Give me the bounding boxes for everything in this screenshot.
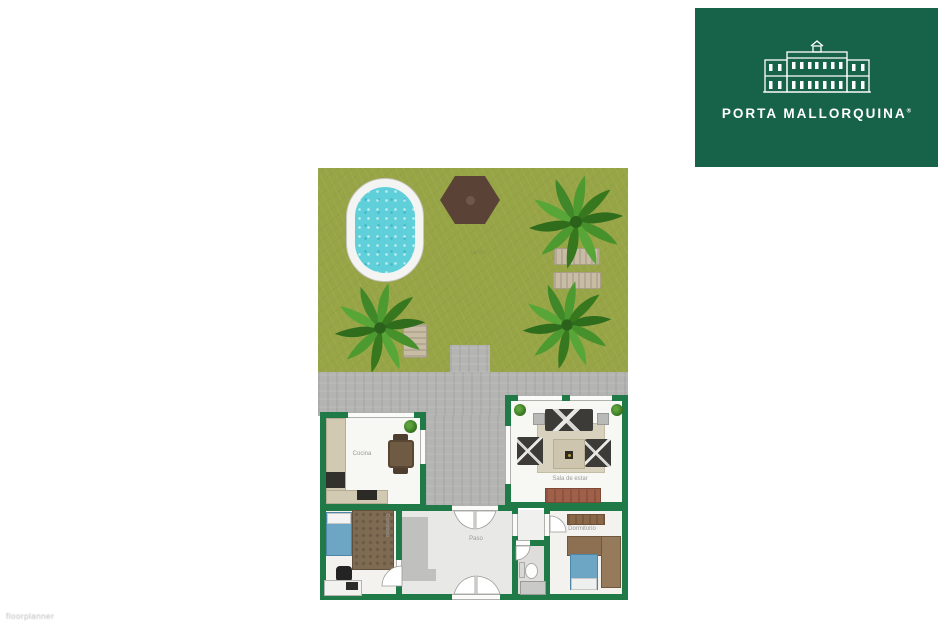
- watermark: floorplanner: [6, 612, 54, 621]
- brand-text: PORTA MALLORQUINA: [722, 106, 907, 121]
- stove: [326, 472, 345, 488]
- dresser: [567, 514, 605, 525]
- plant-icon: [611, 404, 623, 416]
- sofa: [585, 439, 611, 467]
- living-room-label: Sala de estar: [525, 476, 615, 482]
- entrance-door-opening: [452, 594, 500, 600]
- side-table: [597, 413, 609, 425]
- palm-tree-icon: [332, 280, 428, 376]
- sofa: [545, 409, 593, 431]
- window-opening: [518, 395, 562, 401]
- door-opening: [512, 514, 518, 536]
- page: Jardín: [0, 0, 945, 630]
- hall-closet: [402, 517, 428, 575]
- vestibule: [514, 510, 548, 542]
- chair: [393, 467, 408, 474]
- desk-item: [346, 582, 358, 590]
- hexagon-pergola-icon: [440, 176, 500, 224]
- door-opening: [544, 514, 550, 536]
- decor-dot: [568, 454, 571, 457]
- plant-icon: [514, 404, 526, 416]
- french-door-opening: [452, 505, 498, 511]
- palm-tree-icon: [520, 278, 614, 372]
- window-opening: [348, 412, 414, 418]
- kitchen-label: Cocina: [340, 451, 384, 457]
- hall-label: Paso: [446, 536, 506, 542]
- sofa: [517, 437, 543, 465]
- stone-path: [450, 345, 490, 373]
- bedroom-left-label: Dormitorio: [380, 514, 390, 560]
- pool-water: [355, 187, 415, 273]
- bedroom-right-label: Dormitorio: [550, 526, 614, 532]
- sink: [357, 490, 377, 500]
- logo-panel: PORTA MALLORQUINA®: [695, 8, 938, 167]
- toilet-bowl: [525, 563, 538, 579]
- window-opening: [570, 395, 612, 401]
- wardrobe: [601, 536, 621, 588]
- door-opening: [516, 540, 530, 546]
- hall-closet: [402, 569, 436, 581]
- side-table: [533, 413, 545, 425]
- brand-name: PORTA MALLORQUINA®: [722, 106, 911, 121]
- terrace-walkway: [425, 415, 506, 511]
- sideboard: [545, 488, 601, 503]
- palm-tree-icon: [526, 172, 626, 272]
- floor-plan: Jardín: [318, 168, 628, 600]
- pergola-center: [466, 196, 475, 205]
- patio-door-opening: [505, 426, 511, 484]
- garden-label: Jardín: [455, 250, 501, 256]
- pool: [346, 178, 424, 282]
- bed-pillow: [327, 513, 351, 524]
- garden-area: Jardín: [318, 168, 628, 372]
- shower: [520, 581, 546, 595]
- plant-icon: [404, 420, 417, 433]
- door-opening: [420, 430, 426, 464]
- dining-table: [388, 440, 414, 468]
- bed-footboard: [571, 578, 597, 590]
- registered-mark: ®: [907, 109, 911, 115]
- door-opening: [396, 560, 402, 586]
- finca-building-icon: [757, 38, 877, 96]
- coffee-table-center: [565, 451, 573, 459]
